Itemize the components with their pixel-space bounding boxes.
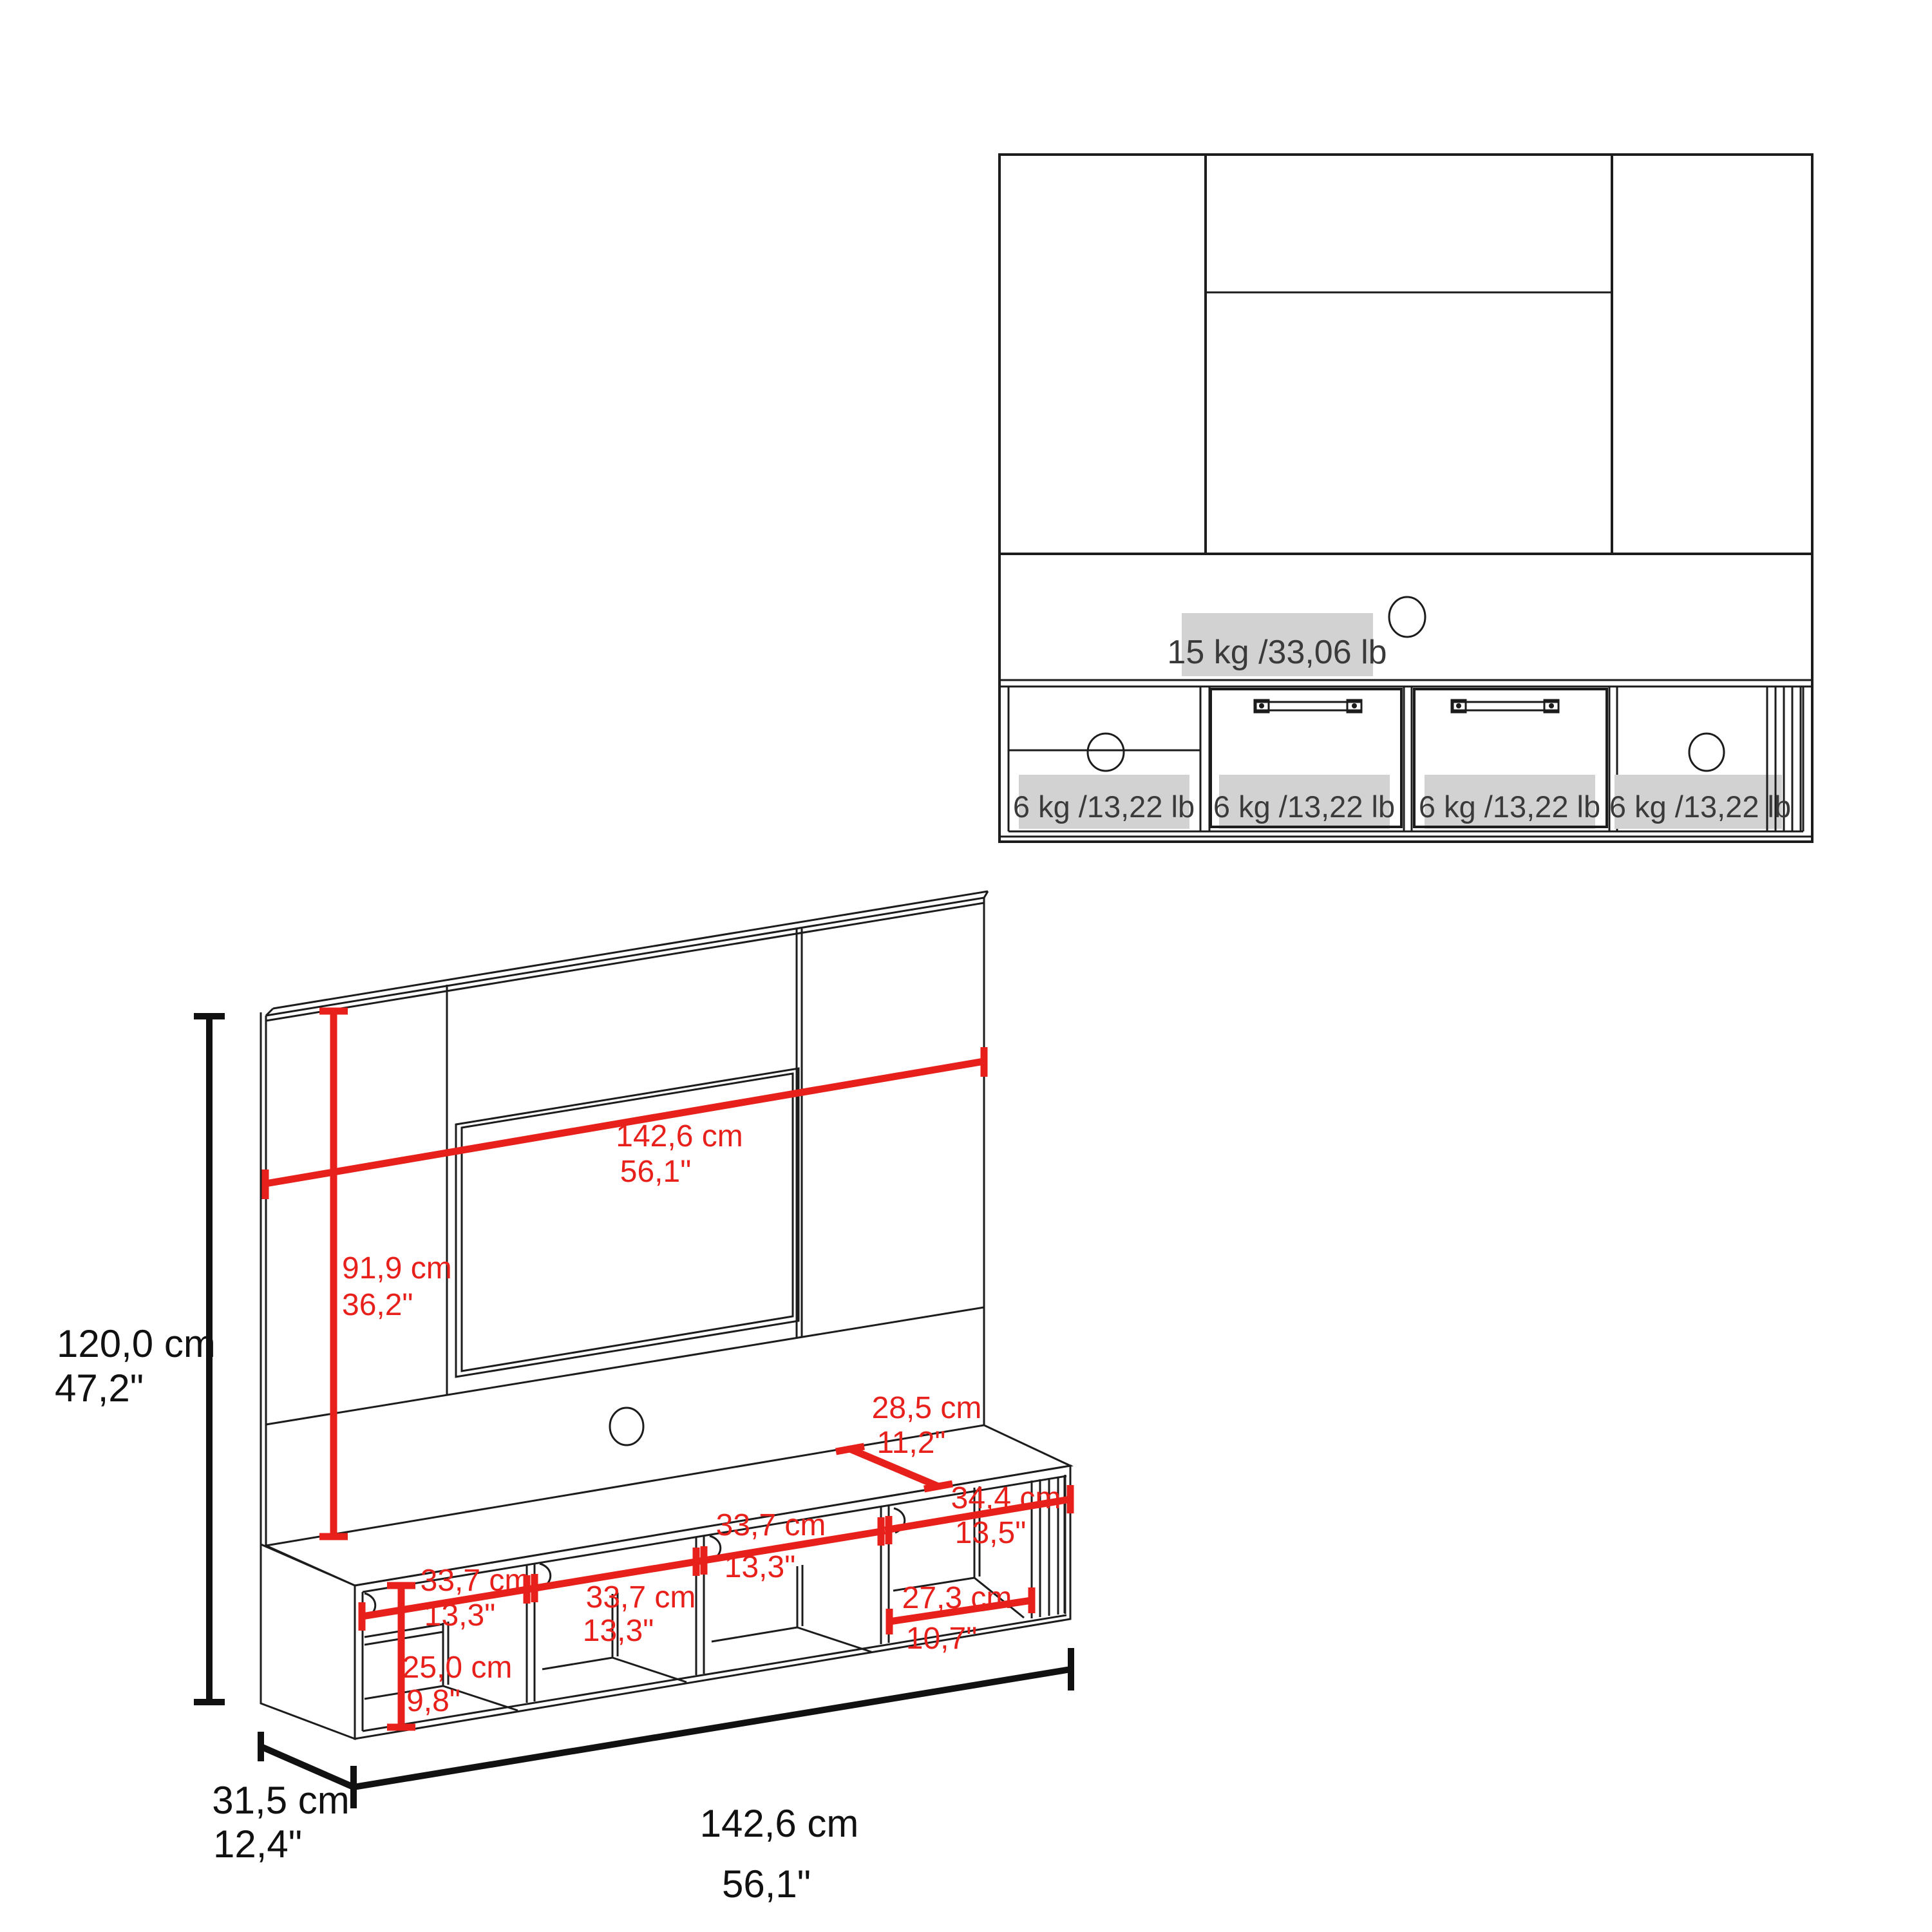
tv-recess-inner [462, 1074, 793, 1371]
capacity-label-shelf: 15 kg /33,06 lb [1167, 634, 1387, 671]
front-panel-lines [999, 155, 1812, 687]
dim-depth-cm: 31,5 cm [212, 1779, 349, 1822]
dim-inner-height-cm: 25,0 cm [402, 1651, 513, 1685]
furniture-dimension-diagram: 15 kg /33,06 lb [0, 0, 1932, 1932]
front-outline [999, 155, 1812, 842]
dim-width-bottom-cm: 142,6 cm [700, 1802, 859, 1845]
dim-cubby2-cm: 33,7 cm [586, 1580, 696, 1615]
tv-recess-outer [456, 1068, 799, 1377]
dim-top-depth-cm: 28,5 cm [872, 1391, 982, 1425]
dim-cubby1-cm: 33,7 cm [421, 1564, 531, 1598]
dim-width-bottom-in: 56,1" [722, 1862, 811, 1906]
cable-hole [610, 1408, 643, 1445]
dim-cubby3-in: 13,3" [724, 1550, 795, 1584]
dim-width-top-cm: 142,6 cm [616, 1119, 743, 1153]
dim-end-section-cm: 34,4 cm [951, 1481, 1061, 1515]
dim-cubby1-in: 13,3" [424, 1598, 495, 1633]
cable-hole [1689, 734, 1724, 771]
front-view: 15 kg /33,06 lb [999, 155, 1812, 842]
dim-end-section-in: 13,5" [955, 1516, 1026, 1550]
capacity-label-3: 6 kg /13,22 lb [1419, 790, 1600, 824]
cable-hole [1389, 597, 1425, 637]
capacity-label-4: 6 kg /13,22 lb [1609, 790, 1791, 824]
dim-depth-in: 12,4" [213, 1823, 302, 1866]
iso-view: 120,0 cm 47,2" 142,6 cm 56,1" 31,5 cm 12… [55, 891, 1071, 1906]
capacity-label-1: 6 kg /13,22 lb [1013, 790, 1195, 824]
dim-end-cubby-in: 10,7" [906, 1622, 977, 1656]
dim-end-cubby-cm: 27,3 cm [902, 1581, 1012, 1615]
cable-hole [1088, 734, 1124, 771]
dim-height-in: 47,2" [55, 1367, 144, 1410]
dim-cubby2-in: 13,3" [583, 1614, 654, 1648]
dim-panel-height-in: 36,2" [342, 1288, 413, 1322]
dim-cubby3-cm: 33,7 cm [716, 1508, 826, 1542]
capacity-label-2: 6 kg /13,22 lb [1213, 790, 1395, 824]
diagram-canvas: 15 kg /33,06 lb [0, 0, 1932, 1932]
dim-top-depth-in: 11,2" [877, 1426, 946, 1460]
dim-panel-height-cm: 91,9 cm [342, 1251, 452, 1285]
dim-height-cm: 120,0 cm [57, 1322, 216, 1365]
dim-width-top-in: 56,1" [620, 1155, 691, 1189]
dim-inner-height-in: 9,8" [406, 1684, 460, 1718]
